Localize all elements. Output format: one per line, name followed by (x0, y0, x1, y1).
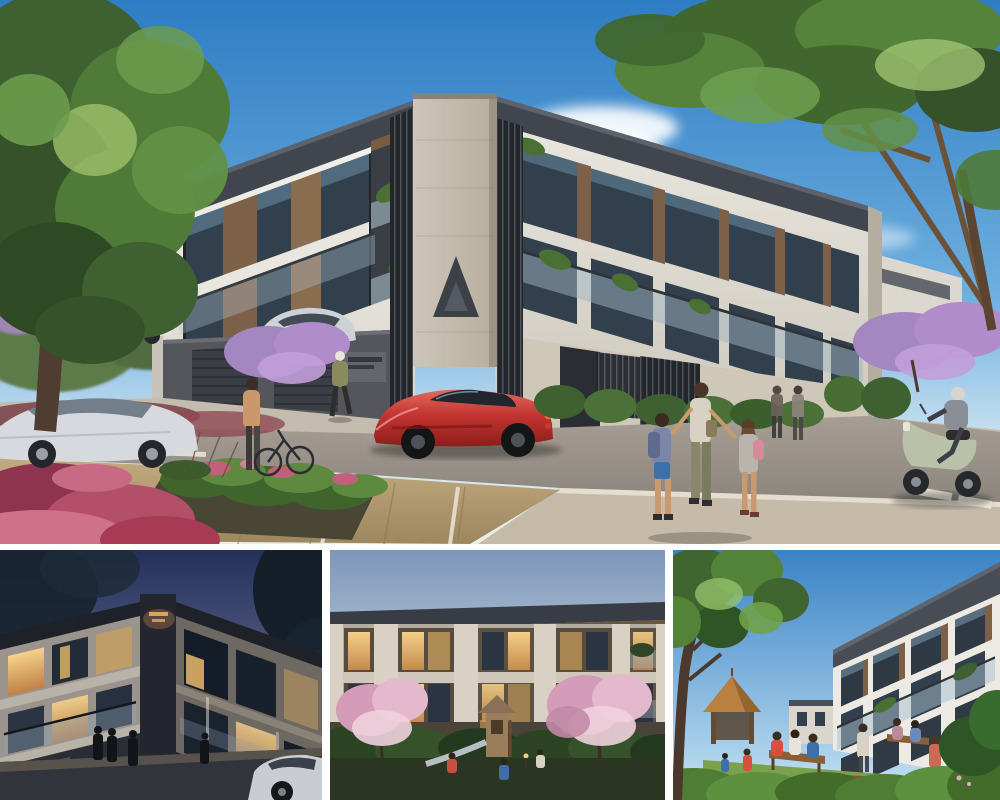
main-exterior-day-panel (0, 0, 1000, 544)
day-courtyard-scene (673, 550, 1000, 800)
shoulder-bag (706, 420, 717, 437)
blue-backpack (648, 432, 660, 458)
main-exterior-day-scene (0, 0, 1000, 544)
dark-slat-strip-right (497, 118, 523, 432)
day-courtyard-panel (673, 550, 1000, 800)
corner-tower (140, 594, 176, 768)
dark-slat-strip (390, 108, 413, 430)
dusk-garden-scene (330, 550, 665, 800)
dusk-garden-panel (330, 550, 665, 800)
lawn-dark (330, 758, 665, 800)
concrete-pillar (413, 93, 497, 367)
helmet (951, 387, 965, 401)
pink-backpack (753, 440, 764, 460)
dusk-corner-scene (0, 550, 322, 800)
render-collage (0, 0, 1000, 800)
dusk-corner-panel (0, 550, 322, 800)
